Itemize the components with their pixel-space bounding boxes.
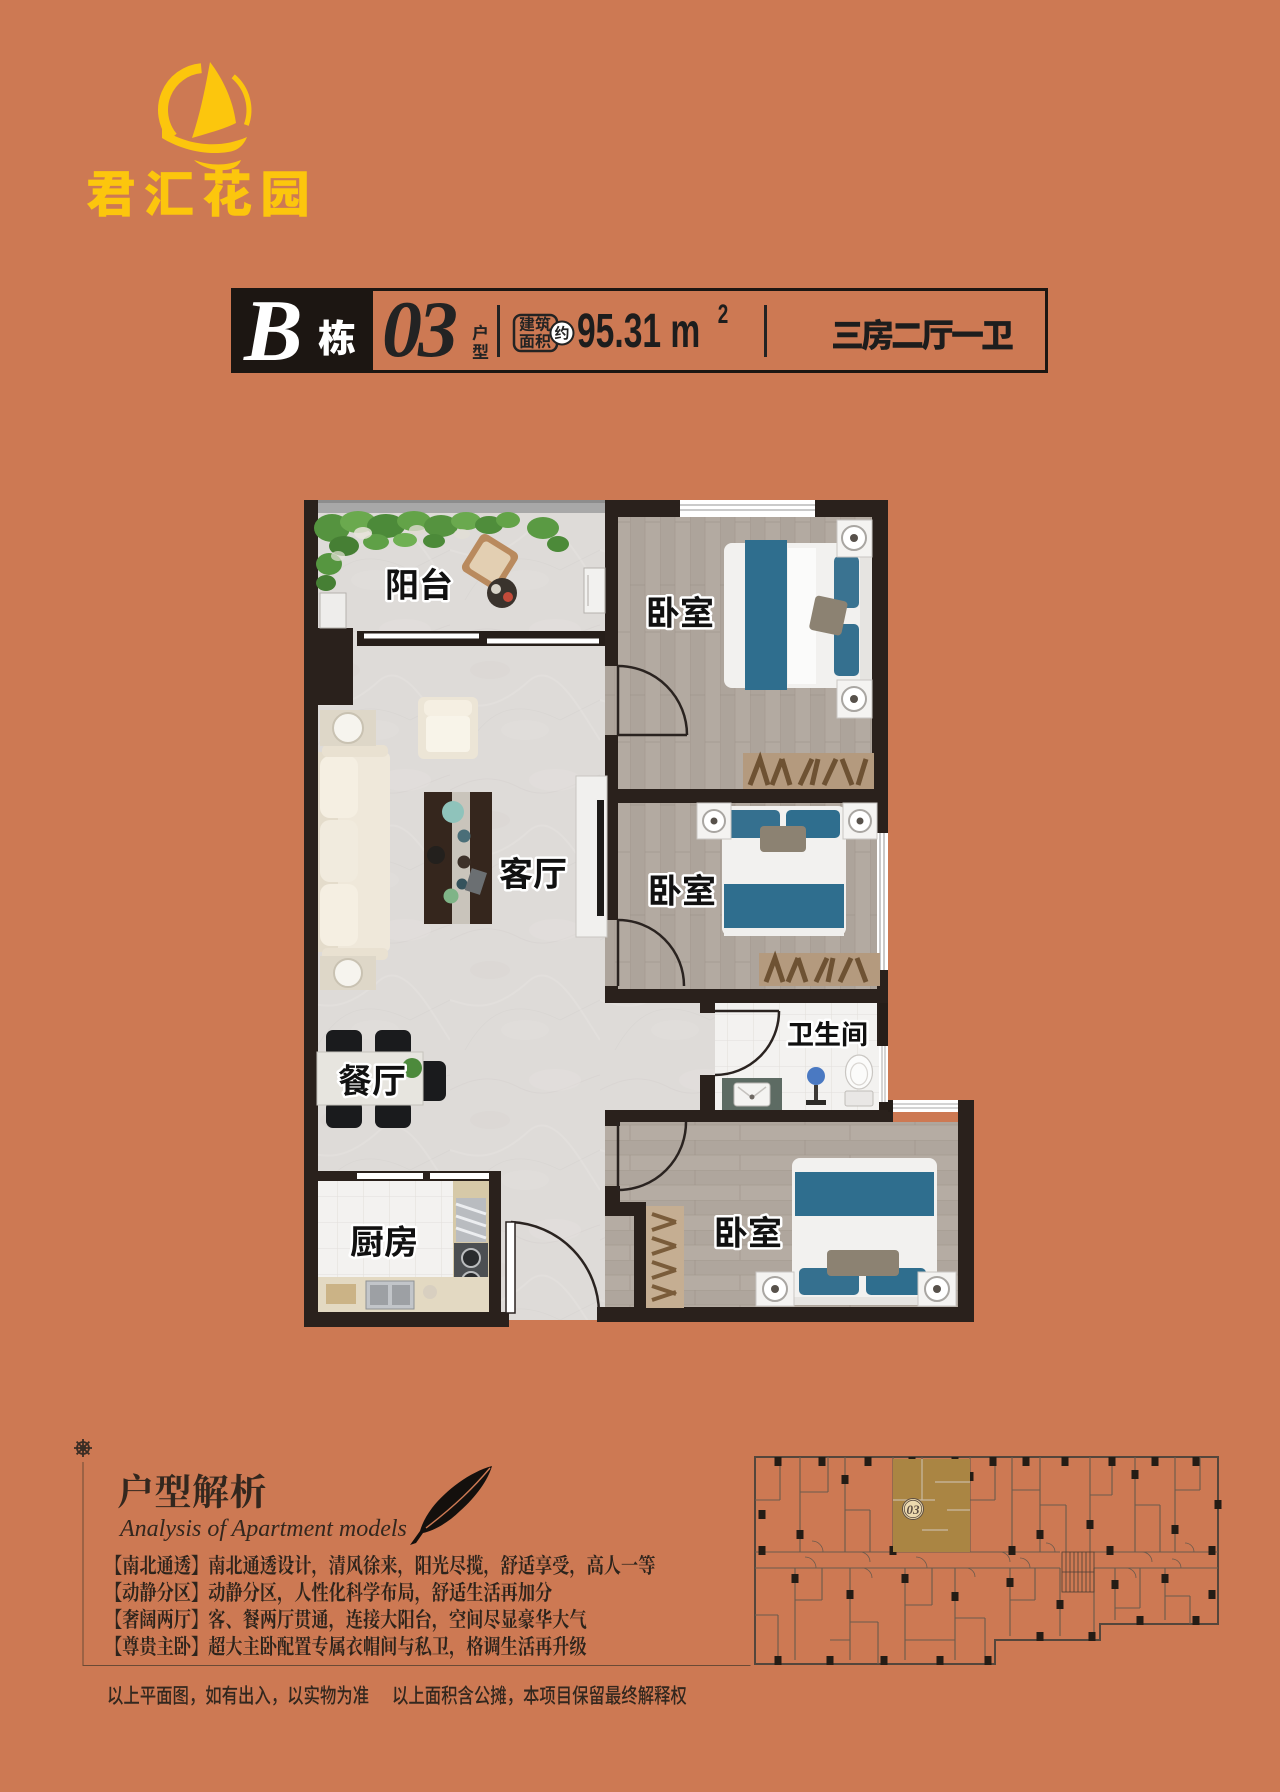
svg-text:Analysis of Apartment models: Analysis of Apartment models [118,1516,407,1542]
svg-text:03: 03 [382,286,456,374]
svg-text:95.31 m: 95.31 m [577,303,700,357]
svg-text:B: B [243,283,303,380]
svg-text:03: 03 [907,1502,921,1517]
svg-text:2: 2 [718,299,729,329]
